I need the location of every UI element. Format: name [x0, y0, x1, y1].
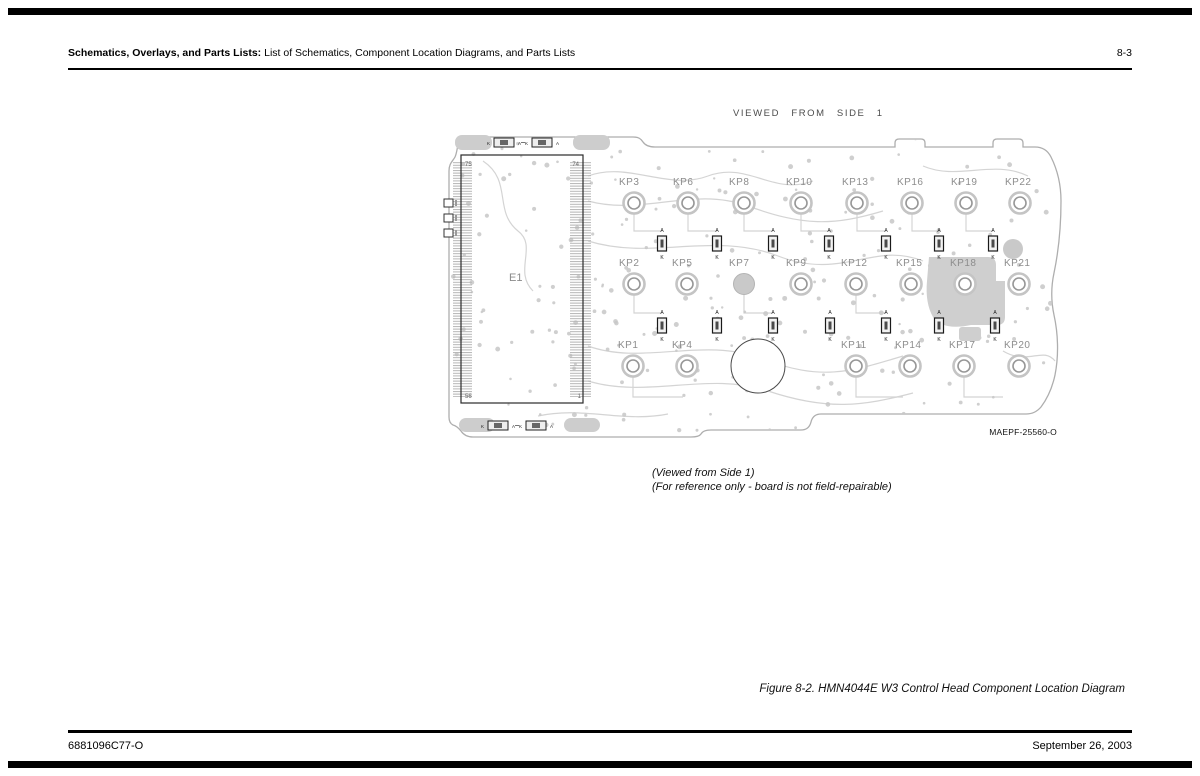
ic-pin-top-right: 74 [572, 162, 579, 168]
ic-ref: E1 [509, 272, 522, 284]
anode-marker: A [512, 424, 515, 429]
footer-rule [68, 730, 1132, 733]
ic-pin-bottom-left: 56 [465, 394, 472, 400]
button-label: KP10 [786, 177, 812, 188]
button-label: KP7 [729, 258, 749, 269]
smd-components-left-edge [444, 199, 457, 237]
button-label: KP9 [786, 258, 806, 269]
button-label: KP14 [895, 340, 921, 351]
figure-note-1: (Viewed from Side 1) [652, 466, 892, 480]
page-top-border [8, 8, 1192, 15]
cathode-marker: K [487, 141, 490, 146]
footer-date: September 26, 2003 [1032, 740, 1132, 752]
button-label: KP5 [672, 258, 692, 269]
button-label: KP18 [950, 258, 976, 269]
button-label: KP16 [897, 177, 923, 188]
artwork-id: MAEPF-25560-O [989, 427, 1057, 437]
header-section-title: Schematics, Overlays, and Parts Lists: [68, 47, 261, 59]
speaker-hole [731, 339, 785, 393]
figure-note-2: (For reference only - board is not field… [652, 480, 892, 494]
cathode-marker: K [481, 424, 484, 429]
button-label: KP21 [1004, 258, 1030, 269]
button-label: KP12 [841, 258, 867, 269]
anode-marker: A [518, 141, 521, 146]
footer-part-number: 6881096C77-O [68, 740, 143, 752]
header-section-subtitle: List of Schematics, Component Location D… [261, 47, 575, 59]
page-header: Schematics, Overlays, and Parts Lists: L… [68, 47, 1132, 59]
figure-notes: (Viewed from Side 1) (For reference only… [652, 466, 892, 494]
button-label: KP3 [619, 177, 639, 188]
button-label: KP17 [949, 340, 975, 351]
button-label: KP13 [842, 177, 868, 188]
page-number: 8-3 [1117, 47, 1132, 59]
figure-caption: Figure 8-2. HMN4044E W3 Control Head Com… [759, 683, 1125, 695]
button-label: KP4 [672, 340, 692, 351]
page-bottom-border [8, 761, 1192, 768]
header-rule [68, 68, 1132, 70]
anode-marker: A [550, 424, 553, 429]
button-label: KP8 [729, 177, 749, 188]
button-label: KP15 [896, 258, 922, 269]
anode-marker: A [556, 141, 559, 146]
cathode-marker: K [519, 424, 522, 429]
button-label: KP2 [619, 258, 639, 269]
button-label: KP19 [951, 177, 977, 188]
board-view-label: VIEWED FROM SIDE 1 [733, 108, 884, 119]
button-label: KP1 [618, 340, 638, 351]
button-label: KP6 [673, 177, 693, 188]
button-label: KP20 [1004, 340, 1030, 351]
button-label: KP22 [1005, 177, 1031, 188]
cathode-marker: K [525, 141, 528, 146]
board-artwork: E17574561KP3KP6KP8KP10KP13KP16KP19KP22KP… [443, 131, 1063, 439]
ic-pin-top-left: 75 [465, 162, 472, 168]
button-label: KP11 [841, 340, 867, 351]
